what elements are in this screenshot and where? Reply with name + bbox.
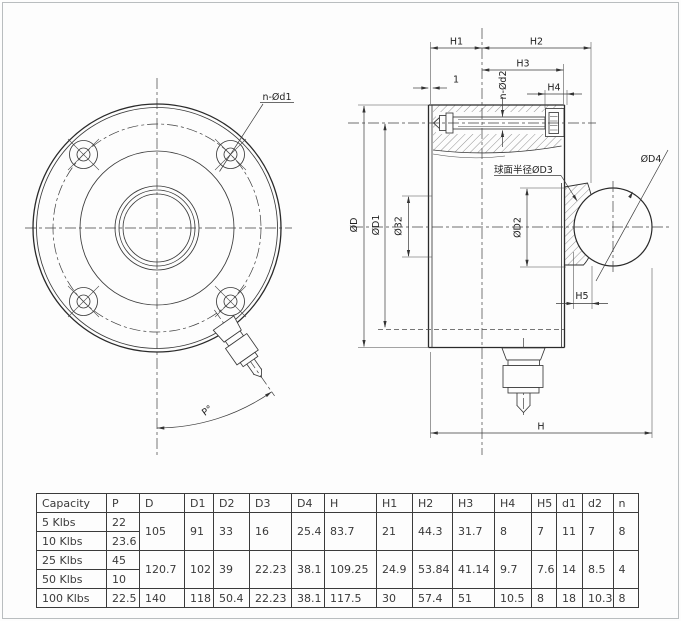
- cell: 105: [140, 513, 185, 551]
- n-od2-label: n-Ød2: [498, 70, 509, 99]
- od4-label: ØD4: [641, 154, 662, 165]
- cell: 14: [557, 551, 583, 589]
- h-label: H: [537, 422, 544, 433]
- cell: 7.6: [532, 551, 557, 589]
- cell: 38.1: [292, 551, 325, 589]
- cell: 30: [377, 589, 413, 608]
- cell: 120.7: [140, 551, 185, 589]
- col-header: P: [107, 494, 140, 513]
- cell: 7: [583, 513, 614, 551]
- col-header: H: [325, 494, 377, 513]
- cell: 4: [613, 551, 638, 589]
- cell: 100 Klbs: [37, 589, 107, 608]
- col-header: Capacity: [37, 494, 107, 513]
- col-header: D: [140, 494, 185, 513]
- cell: 33: [214, 513, 250, 551]
- bolt-hole-callout: n-Ød1: [220, 92, 295, 172]
- side-view: ØD ØD1 Ø32 H1: [348, 28, 672, 455]
- col-header: D4: [292, 494, 325, 513]
- technical-drawing-page: n-Ød1 P°: [0, 0, 681, 621]
- cell: 25.4: [292, 513, 325, 551]
- cable-break-symbol: [253, 368, 265, 379]
- bolt-hole: [68, 286, 99, 317]
- col-header: d2: [583, 494, 614, 513]
- cell: 22.5: [107, 589, 140, 608]
- cell: 21: [377, 513, 413, 551]
- col-header: d1: [557, 494, 583, 513]
- cell: 24.9: [377, 551, 413, 589]
- cell: 8: [613, 513, 638, 551]
- od2-label: ØD2: [513, 217, 524, 238]
- table-row: 100 Klbs 22.5 140 118 50.4 22.23 38.1 11…: [37, 589, 639, 608]
- cable-connector-side: [502, 338, 545, 418]
- front-view: n-Ød1 P°: [25, 78, 294, 458]
- table-row: 5 Klbs 22 105 91 33 16 25.4 83.7 21 44.3…: [37, 513, 639, 532]
- cell: 38.1: [292, 589, 325, 608]
- o32-label: Ø32: [394, 216, 405, 236]
- sphere-od3-label: 球面半径ØD3: [494, 164, 553, 176]
- od-label: ØD: [349, 218, 360, 233]
- cell: 53.84: [413, 551, 453, 589]
- cell: 44.3: [413, 513, 453, 551]
- cell: 102: [185, 551, 214, 589]
- cell: 39: [214, 551, 250, 589]
- col-header: n: [613, 494, 638, 513]
- col-header: H2: [413, 494, 453, 513]
- cell: 109.25: [325, 551, 377, 589]
- cell: 7: [532, 513, 557, 551]
- plate-thickness-label: 1: [453, 75, 459, 86]
- col-header: H3: [453, 494, 495, 513]
- cell: 18: [557, 589, 583, 608]
- cell: 11: [557, 513, 583, 551]
- h3-label: H3: [516, 59, 529, 70]
- cell: 10 Klbs: [37, 532, 107, 551]
- cell: 5 Klbs: [37, 513, 107, 532]
- cell: 8: [495, 513, 532, 551]
- col-header: H4: [495, 494, 532, 513]
- cell: 8: [613, 589, 638, 608]
- h1-label: H1: [450, 37, 463, 48]
- bolt-hole: [68, 139, 99, 170]
- cell: 117.5: [325, 589, 377, 608]
- h5-label: H5: [575, 291, 588, 302]
- cell: 10.5: [495, 589, 532, 608]
- col-header: H5: [532, 494, 557, 513]
- dimension-table: Capacity P D D1 D2 D3 D4 H H1 H2 H3 H4 H…: [36, 493, 639, 608]
- col-header: D2: [214, 494, 250, 513]
- cell: 23.6: [107, 532, 140, 551]
- cell: 50.4: [214, 589, 250, 608]
- angle-dimension: P°: [157, 392, 272, 430]
- cell: 31.7: [453, 513, 495, 551]
- n-od1-label: n-Ød1: [262, 92, 291, 103]
- h4-label: H4: [547, 83, 560, 94]
- nut-pocket: [545, 108, 565, 137]
- cell: 8.5: [583, 551, 614, 589]
- diaphragm-curve: [433, 154, 505, 158]
- cell: 10: [107, 570, 140, 589]
- cell: 8: [532, 589, 557, 608]
- cell: 118: [185, 589, 214, 608]
- cell: 16: [250, 513, 292, 551]
- col-header: H1: [377, 494, 413, 513]
- h2-label: H2: [530, 37, 543, 48]
- cell: 45: [107, 551, 140, 570]
- cell: 9.7: [495, 551, 532, 589]
- cell: 140: [140, 589, 185, 608]
- cell: 41.14: [453, 551, 495, 589]
- cell: 57.4: [413, 589, 453, 608]
- cell: 51: [453, 589, 495, 608]
- cell: 83.7: [325, 513, 377, 551]
- cell: 22: [107, 513, 140, 532]
- cell: 50 Klbs: [37, 570, 107, 589]
- angle-p-label: P°: [200, 403, 215, 418]
- cell: 25 Klbs: [37, 551, 107, 570]
- bolt-hole: [215, 286, 246, 317]
- table-row: 25 Klbs 45 120.7 102 39 22.23 38.1 109.2…: [37, 551, 639, 570]
- table-header-row: Capacity P D D1 D2 D3 D4 H H1 H2 H3 H4 H…: [37, 494, 639, 513]
- col-header: D1: [185, 494, 214, 513]
- cell: 91: [185, 513, 214, 551]
- cell: 22.23: [250, 589, 292, 608]
- od1-label: ØD1: [371, 215, 382, 236]
- col-header: D3: [250, 494, 292, 513]
- cable-connector-front: [204, 302, 286, 403]
- cell: 10.3: [583, 589, 614, 608]
- cell: 22.23: [250, 551, 292, 589]
